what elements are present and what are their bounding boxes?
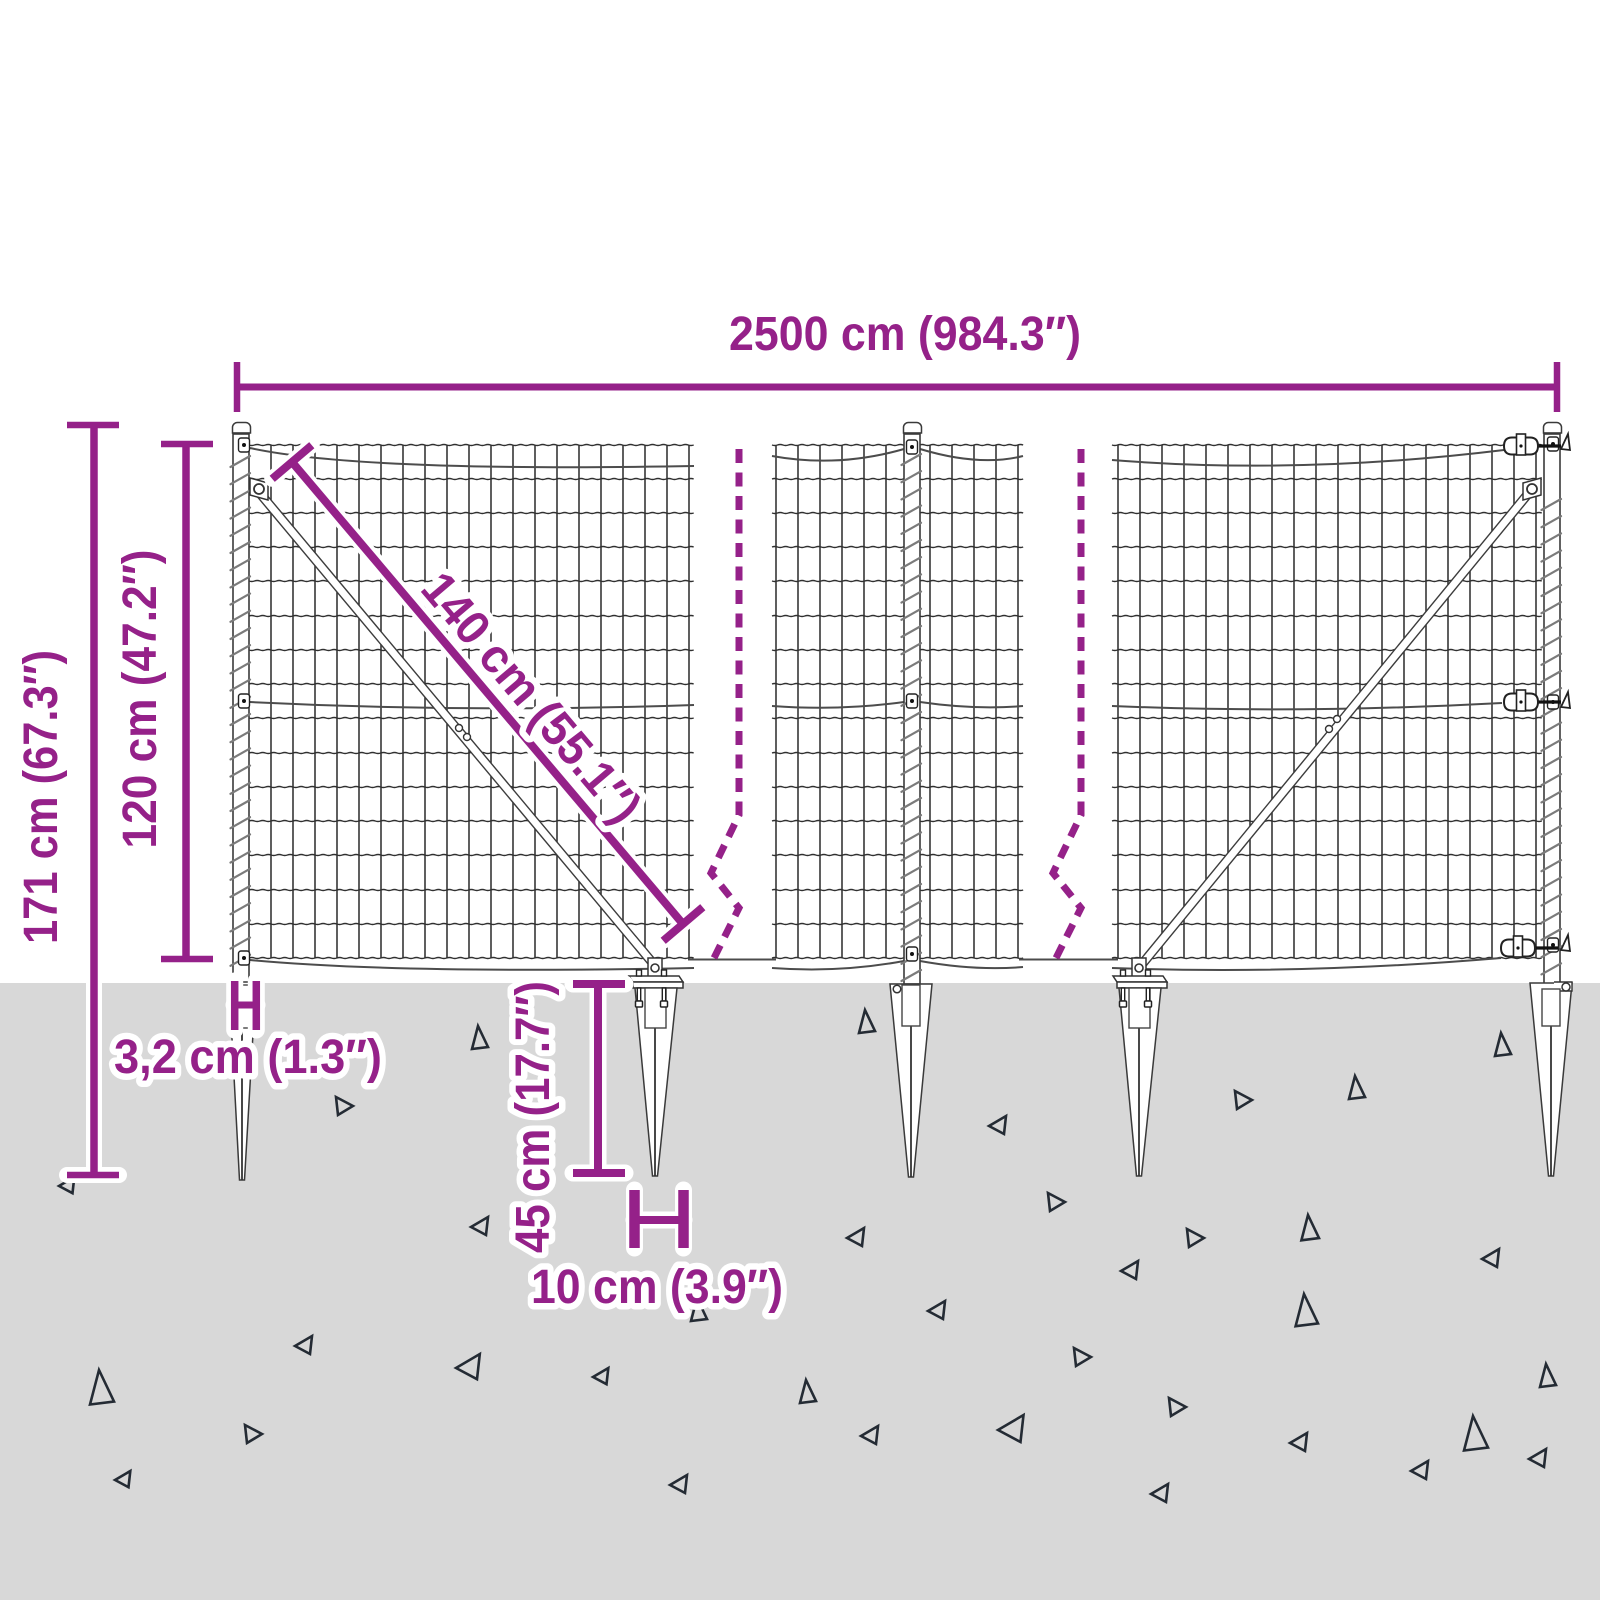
svg-text:120 cm (47.2″): 120 cm (47.2″) (114, 550, 167, 849)
svg-text:45 cm (17.7″): 45 cm (17.7″) (507, 981, 560, 1253)
svg-text:3,2 cm (1.3″): 3,2 cm (1.3″) (114, 1031, 382, 1084)
svg-text:171 cm (67.3″): 171 cm (67.3″) (15, 650, 68, 944)
svg-text:2500 cm (984.3″): 2500 cm (984.3″) (729, 308, 1081, 361)
svg-text:10 cm (3.9″): 10 cm (3.9″) (531, 1261, 783, 1314)
